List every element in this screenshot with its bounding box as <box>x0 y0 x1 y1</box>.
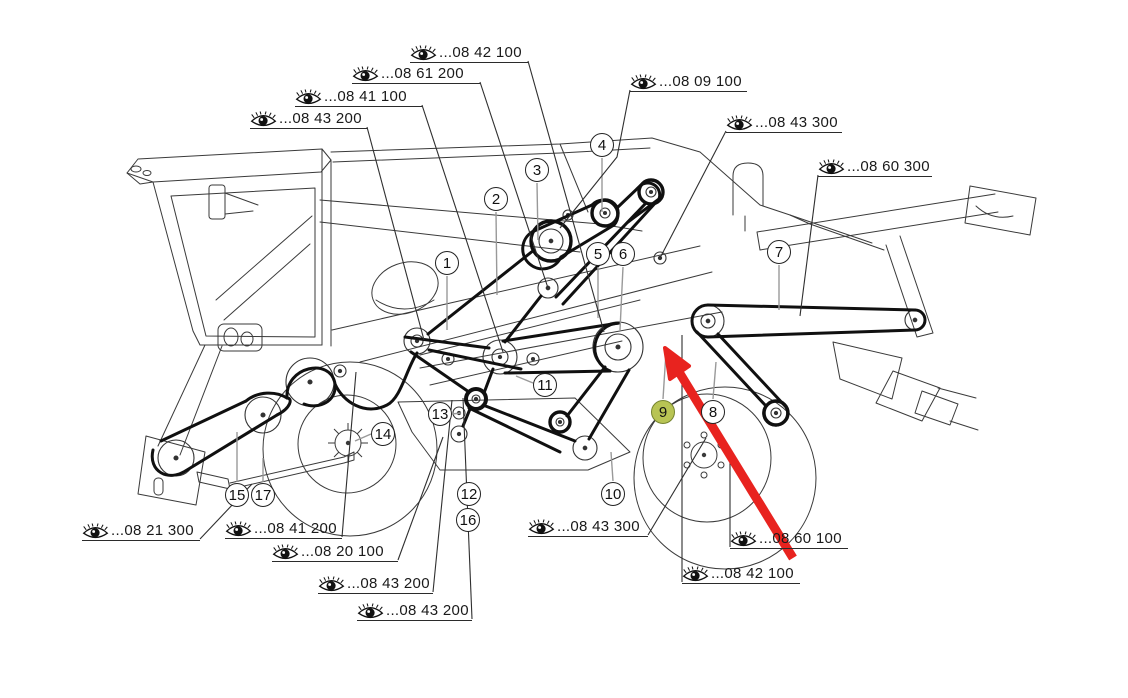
eye-icon <box>295 88 322 107</box>
callout-14[interactable]: 14 <box>371 422 395 446</box>
part-label[interactable]: ...08 60 300 <box>818 157 932 177</box>
callout-17[interactable]: 17 <box>251 483 275 507</box>
part-label[interactable]: ...08 60 100 <box>730 529 848 549</box>
eye-icon <box>225 520 252 539</box>
label-leader <box>528 61 604 332</box>
callout-11[interactable]: 11 <box>533 373 557 397</box>
callout-16[interactable]: 16 <box>456 508 480 532</box>
callout-8[interactable]: 8 <box>701 400 725 424</box>
eye-icon <box>82 522 109 541</box>
part-number: ...08 43 200 <box>347 575 430 592</box>
callout-stems <box>237 158 779 482</box>
part-number: ...08 43 300 <box>755 114 838 131</box>
eye-icon <box>352 65 379 84</box>
label-leader <box>648 438 706 535</box>
part-number: ...08 41 200 <box>254 520 337 537</box>
part-number: ...08 43 300 <box>557 518 640 535</box>
part-number: ...08 42 100 <box>711 565 794 582</box>
label-leader <box>480 82 548 288</box>
eye-icon <box>630 73 657 92</box>
label-leader <box>800 175 818 316</box>
part-label[interactable]: ...08 21 300 <box>82 521 200 541</box>
parts-diagram-page: ...08 42 100...08 61 200...08 41 100...0… <box>0 0 1128 698</box>
eye-icon <box>818 158 845 177</box>
part-label[interactable]: ...08 42 100 <box>682 564 800 584</box>
callout-10[interactable]: 10 <box>601 482 625 506</box>
part-number: ...08 60 100 <box>759 530 842 547</box>
part-label[interactable]: ...08 42 100 <box>410 43 528 63</box>
callout-15[interactable]: 15 <box>225 483 249 507</box>
callout-5[interactable]: 5 <box>586 242 610 266</box>
eye-icon <box>528 518 555 537</box>
callout-3[interactable]: 3 <box>525 158 549 182</box>
eye-icon <box>318 575 345 594</box>
callout-12[interactable]: 12 <box>457 482 481 506</box>
eye-icon <box>726 114 753 133</box>
part-number: ...08 20 100 <box>301 543 384 560</box>
part-number: ...08 41 100 <box>324 88 407 105</box>
eye-icon <box>250 110 277 129</box>
eye-icon <box>272 543 299 562</box>
eye-icon <box>682 565 709 584</box>
eye-icon <box>730 530 757 549</box>
part-label[interactable]: ...08 20 100 <box>272 542 398 562</box>
machine-line-art <box>0 0 1128 698</box>
callout-7[interactable]: 7 <box>767 240 791 264</box>
callout-1[interactable]: 1 <box>435 251 459 275</box>
part-number: ...08 42 100 <box>439 44 522 61</box>
label-leader <box>398 437 443 560</box>
part-number: ...08 09 100 <box>659 73 742 90</box>
part-label[interactable]: ...08 61 200 <box>352 64 480 84</box>
pointer-arrow <box>665 348 793 558</box>
callout-13[interactable]: 13 <box>428 402 452 426</box>
part-number: ...08 43 200 <box>386 602 469 619</box>
label-leader <box>422 105 503 352</box>
eye-icon <box>357 602 384 621</box>
callout-9[interactable]: 9 <box>651 400 675 424</box>
belts <box>152 180 925 475</box>
part-label[interactable]: ...08 43 200 <box>318 574 433 594</box>
part-label[interactable]: ...08 09 100 <box>630 72 747 92</box>
part-number: ...08 21 300 <box>111 522 194 539</box>
callout-2[interactable]: 2 <box>484 187 508 211</box>
callout-6[interactable]: 6 <box>611 242 635 266</box>
part-label[interactable]: ...08 41 200 <box>225 519 342 539</box>
part-label[interactable]: ...08 43 300 <box>528 517 648 537</box>
label-leader <box>433 400 452 592</box>
part-label[interactable]: ...08 41 100 <box>295 87 422 107</box>
callout-4[interactable]: 4 <box>590 133 614 157</box>
pulleys <box>158 187 925 476</box>
part-number: ...08 43 200 <box>279 110 362 127</box>
part-label[interactable]: ...08 43 200 <box>357 601 472 621</box>
eye-icon <box>410 44 437 63</box>
part-number: ...08 60 300 <box>847 158 930 175</box>
part-label[interactable]: ...08 43 200 <box>250 109 367 129</box>
part-label[interactable]: ...08 43 300 <box>726 113 842 133</box>
part-number: ...08 61 200 <box>381 65 464 82</box>
